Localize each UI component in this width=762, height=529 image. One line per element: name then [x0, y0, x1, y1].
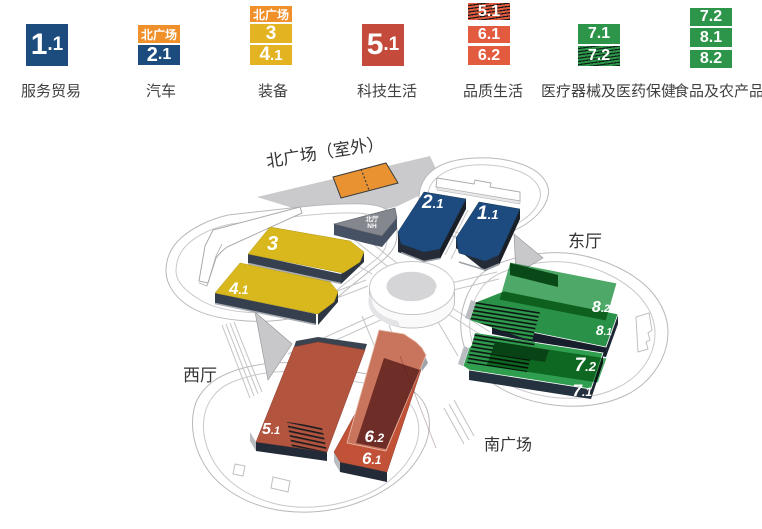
svg-text:东厅: 东厅 — [568, 232, 602, 251]
svg-text:南广场: 南广场 — [484, 436, 532, 454]
svg-text:2.1: 2.1 — [421, 192, 443, 213]
svg-text:西厅: 西厅 — [183, 366, 217, 385]
svg-text:1.1: 1.1 — [477, 203, 498, 224]
svg-text:7.2: 7.2 — [575, 355, 597, 376]
svg-text:北广场（室外）: 北广场（室外） — [265, 134, 386, 171]
svg-text:NH: NH — [367, 223, 377, 230]
svg-text:北厅: 北厅 — [366, 214, 380, 223]
svg-text:3: 3 — [267, 233, 278, 255]
